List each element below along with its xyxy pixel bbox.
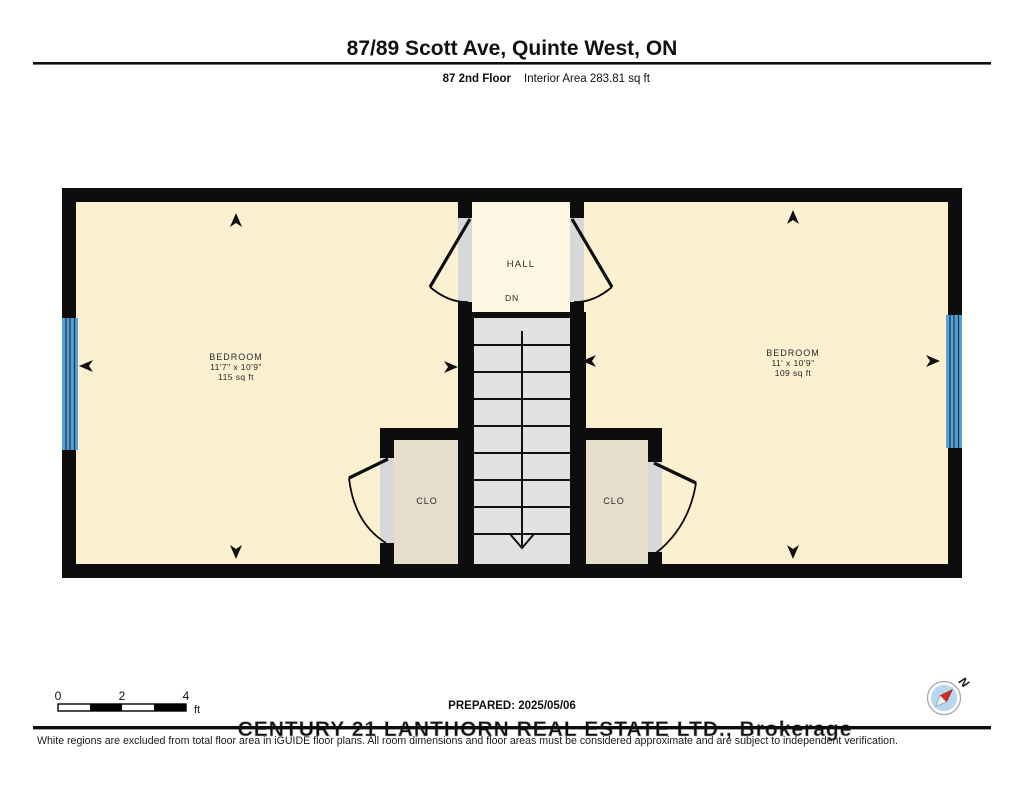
- closet-left-label: CLO: [416, 496, 438, 506]
- scale-tick-0: 0: [55, 689, 62, 703]
- wall-outer-top: [62, 188, 962, 202]
- page-title: 87/89 Scott Ave, Quinte West, ON: [347, 37, 678, 60]
- scale-unit-label: ft: [194, 704, 200, 716]
- floorplan-canvas: 87/89 Scott Ave, Quinte West, ON 87 2nd …: [0, 0, 1024, 791]
- window-left: [62, 318, 78, 450]
- interior-area-label: Interior Area 283.81 sq ft: [524, 73, 651, 85]
- floorplan-page: 87/89 Scott Ave, Quinte West, ON 87 2nd …: [0, 0, 1024, 791]
- scale-bar-segment: [90, 704, 122, 712]
- window-right: [946, 315, 962, 448]
- stairs-dn-label: DN: [505, 293, 519, 303]
- hall-floor: [472, 202, 570, 312]
- footer-divider: [33, 726, 991, 729]
- header: 87/89 Scott Ave, Quinte West, ON 87 2nd …: [33, 37, 991, 85]
- disclaimer-text: White regions are excluded from total fl…: [37, 735, 898, 747]
- floorplan: BEDROOM 11'7" x 10'9" 115 sq ft BEDROOM …: [62, 188, 962, 578]
- room-name: BEDROOM: [209, 352, 263, 362]
- room-area: 109 sq ft: [775, 368, 812, 378]
- room-dims: 11' x 10'9": [771, 358, 814, 368]
- prepared-date: PREPARED: 2025/05/06: [448, 700, 576, 712]
- wall-stair-right: [570, 312, 586, 564]
- hall-label: HALL: [507, 259, 536, 270]
- scale-bar: 0 2 4 ft: [55, 689, 200, 716]
- wall-stair-left: [458, 312, 474, 564]
- door-opening-closet-left: [380, 458, 394, 543]
- compass-north-label: N: [956, 674, 972, 690]
- room-area: 115 sq ft: [218, 372, 254, 382]
- scale-tick-4: 4: [183, 689, 190, 703]
- floor-label: 87 2nd Floor: [443, 73, 512, 85]
- door-opening-closet-right: [648, 462, 662, 552]
- closet-right-label: CLO: [603, 496, 625, 506]
- staircase: [474, 318, 570, 564]
- wall-outer-bottom: [62, 564, 962, 578]
- wall-stair-top-edge: [458, 312, 586, 318]
- header-divider: [33, 62, 991, 65]
- compass: N: [928, 674, 973, 714]
- room-dims: 11'7" x 10'9": [210, 362, 262, 372]
- scale-tick-2: 2: [119, 689, 126, 703]
- scale-bar-segment: [154, 704, 186, 712]
- room-name: BEDROOM: [766, 348, 820, 358]
